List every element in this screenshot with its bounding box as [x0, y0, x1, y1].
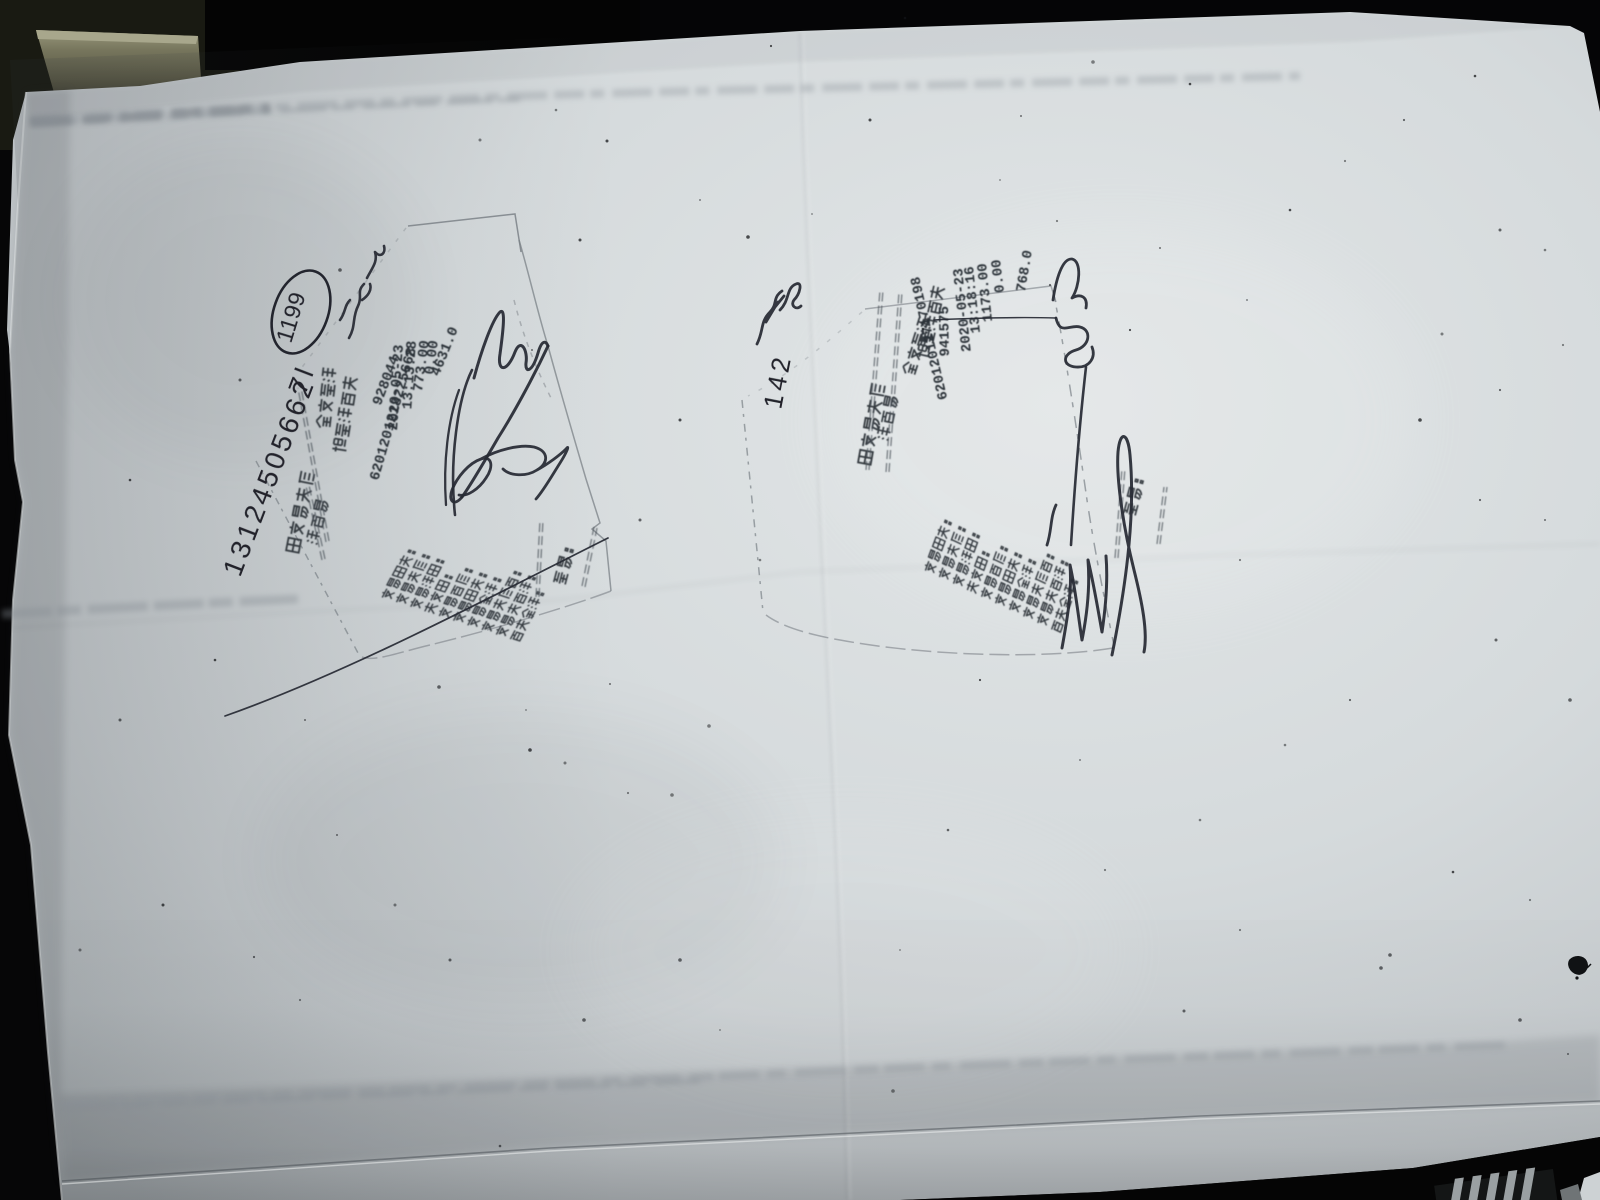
svg-text:941575: 941575	[937, 306, 954, 357]
